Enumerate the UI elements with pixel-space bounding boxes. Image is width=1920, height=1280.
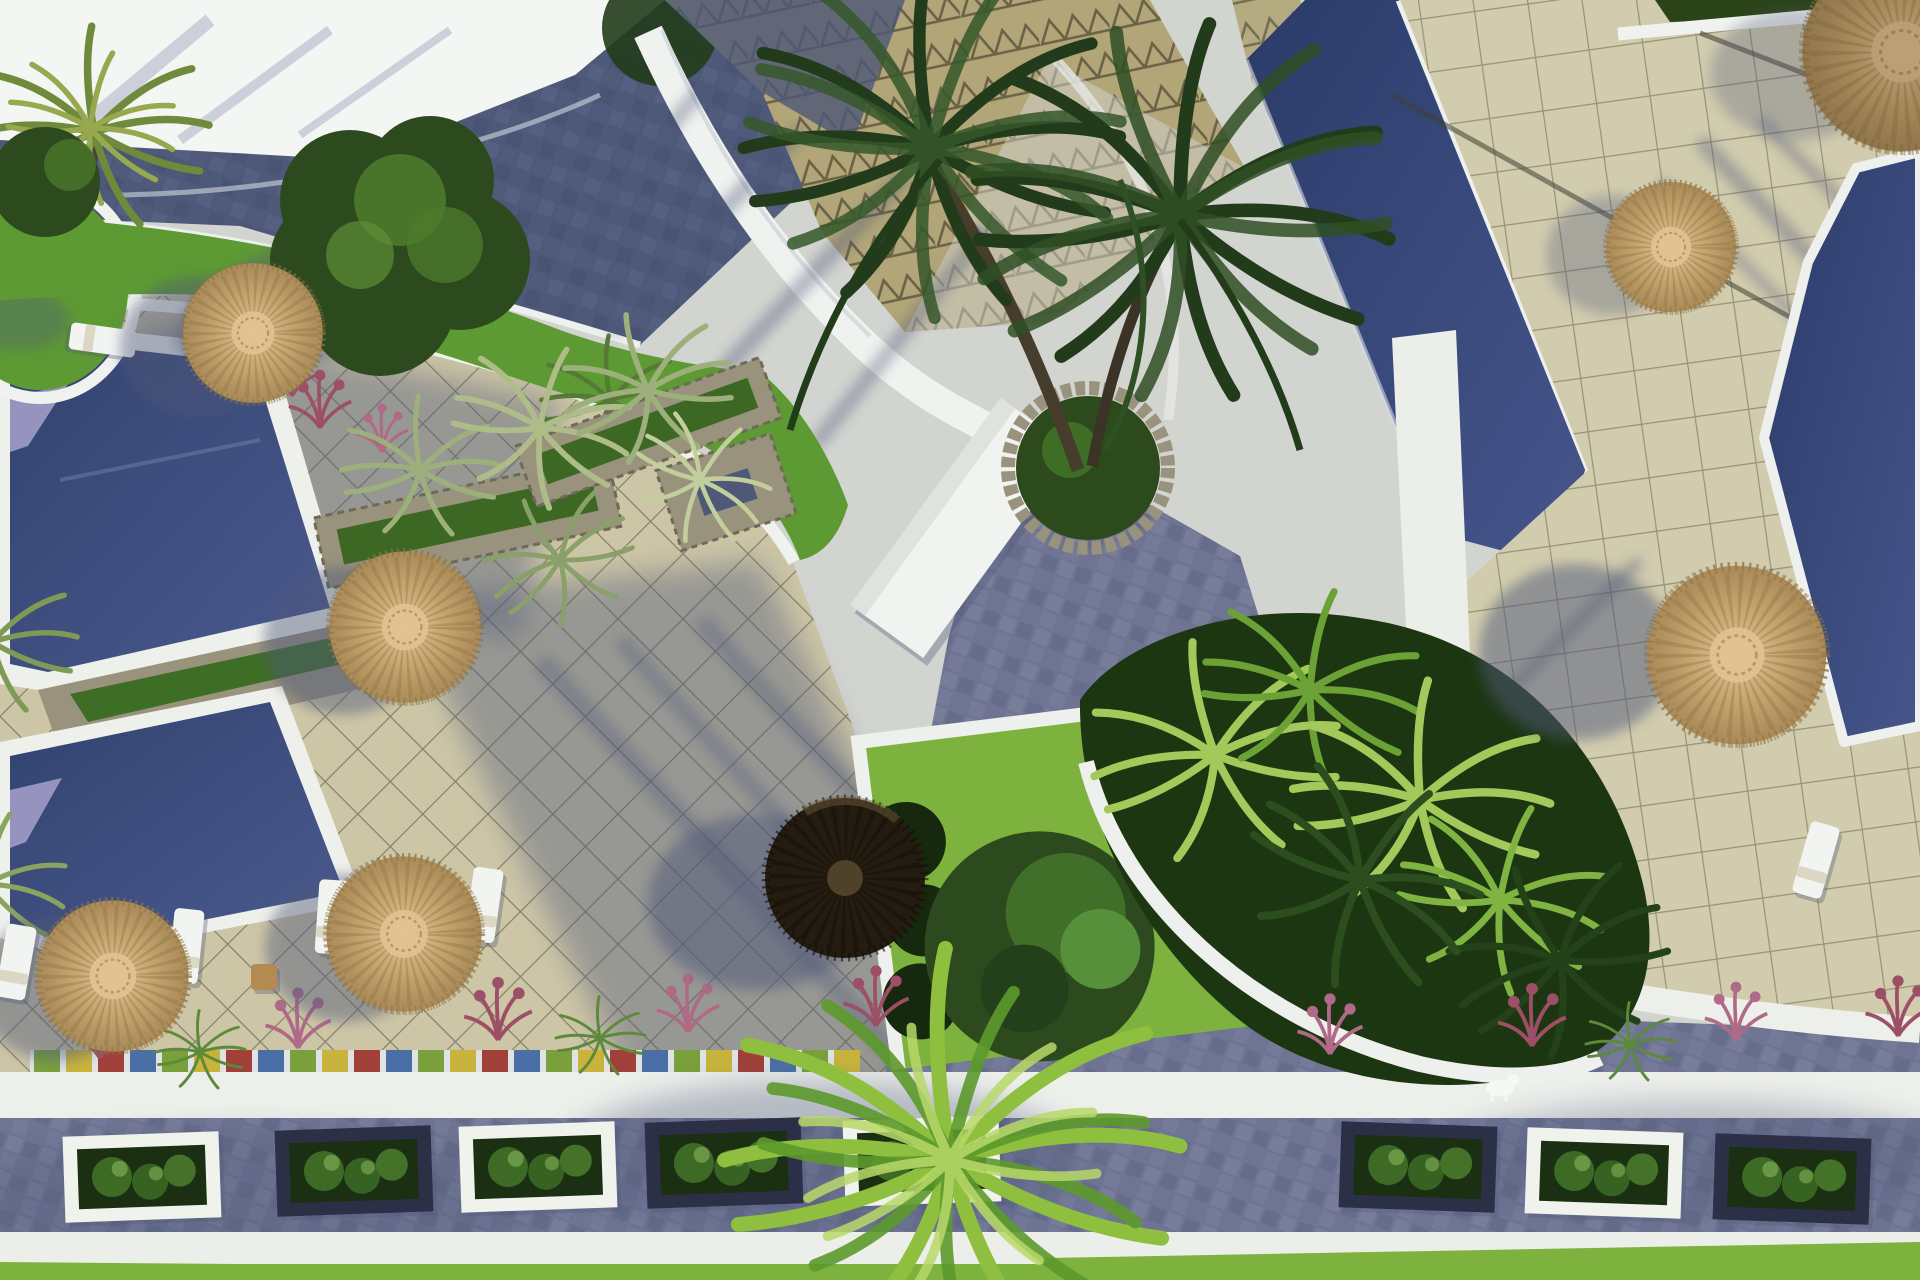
side-table (251, 964, 280, 994)
aerial-render-image (0, 0, 1920, 1280)
thatch-umbrella (328, 550, 482, 704)
colored-tile-strip (30, 1050, 860, 1072)
planter-box (1712, 1133, 1875, 1229)
render-viewport (0, 0, 1920, 1280)
dark-thatch-umbrella (765, 798, 925, 958)
planter-box (63, 1131, 226, 1227)
thatch-umbrella (1605, 181, 1738, 314)
planter-box (275, 1125, 438, 1221)
thatch-umbrella (1646, 564, 1828, 746)
planter-box (459, 1121, 622, 1217)
thatch-umbrella (325, 855, 483, 1013)
planter-box (1524, 1127, 1687, 1223)
thatch-umbrella (36, 899, 190, 1053)
thatch-umbrella (182, 262, 325, 405)
planter-box (1338, 1121, 1501, 1217)
